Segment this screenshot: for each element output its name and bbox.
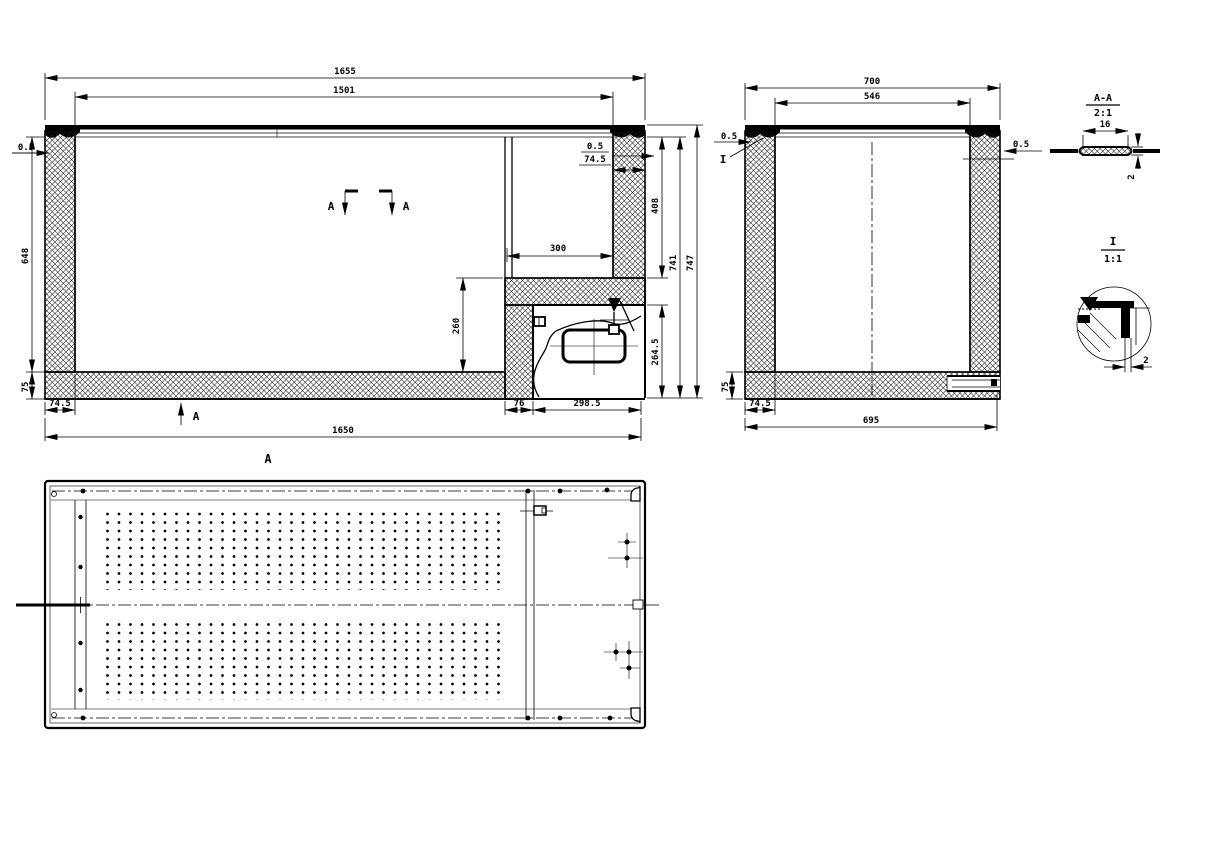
- dim-left-wall: 74.5: [49, 399, 71, 409]
- dim-side-inner-width: 546: [864, 92, 880, 102]
- dim-side-lid-gap-right: 0.5: [1013, 140, 1029, 150]
- cut-label-left: A: [328, 200, 335, 213]
- dim-inner-width: 1501: [333, 86, 355, 96]
- insulation: [45, 131, 645, 399]
- insulation-side: [745, 131, 1000, 399]
- side-section-view: 700 546 0.5 I 0.5 75 74.5 695: [714, 77, 1042, 431]
- drawing-canvas: 1655 1501 0.5 648 75 74.5 A A 0.5: [0, 0, 1205, 863]
- dim-bottom-insulation: 75: [21, 382, 31, 393]
- dim-side-width: 700: [864, 77, 880, 87]
- liner-lines-side: [745, 137, 1000, 399]
- dim-machine-room-width: 298.5: [573, 399, 600, 409]
- dim-step-height: 260: [452, 318, 462, 334]
- dim-lid-gap-right: 0.5: [587, 142, 603, 152]
- dim-recess-depth: 408: [651, 198, 661, 214]
- divider-fitting: [534, 506, 546, 515]
- detail-i-view: I 1:1 2: [1077, 235, 1152, 372]
- detail-aa-thickness: 2: [1127, 174, 1137, 179]
- detail-i-scale: 1:1: [1104, 254, 1122, 265]
- dim-overall-width-top: 1655: [334, 67, 356, 77]
- detail-i-gap: 2: [1143, 356, 1148, 366]
- detail-aa-view: A-A 2:1 16 2: [1050, 93, 1160, 180]
- cut-label-right: A: [403, 200, 410, 213]
- liner-lines: [45, 137, 645, 399]
- dim-machine-wall: 76: [514, 399, 525, 409]
- dim-side-bottom-insulation: 75: [721, 382, 731, 393]
- dim-overall-height: 747: [686, 255, 696, 271]
- detail-aa-scale: 2:1: [1094, 108, 1112, 119]
- dim-overall-width-bottom: 1650: [332, 426, 354, 436]
- plan-view: [16, 481, 660, 728]
- corner-profile: [1078, 297, 1150, 352]
- dim-recess-width: 300: [550, 244, 566, 254]
- dim-side-bottom-width: 695: [863, 416, 879, 426]
- machine-compartment: [534, 298, 641, 397]
- gasket-strip: [1080, 147, 1132, 155]
- detail-aa-title: A-A: [1094, 93, 1112, 104]
- detail-marker-i: I: [720, 153, 727, 166]
- terminal-connector: [534, 317, 545, 326]
- dim-machine-room-height: 264.5: [651, 338, 661, 365]
- dim-liner-height: 741: [669, 255, 679, 271]
- drawing-sheet: 1655 1501 0.5 648 75 74.5 A A 0.5: [0, 0, 1205, 863]
- view-label-a: A: [264, 452, 272, 466]
- dim-side-lid-gap-left: 0.5: [721, 132, 737, 142]
- dim-right-wall: 74.5: [584, 155, 606, 165]
- dim-inner-depth: 648: [21, 248, 31, 264]
- front-section-view: 1655 1501 0.5 648 75 74.5 A A 0.5: [12, 67, 703, 466]
- drain-tube: [947, 375, 1000, 391]
- detail-i-title: I: [1110, 235, 1117, 248]
- lid-side: [745, 125, 1000, 138]
- cut-label-bottom: A: [193, 410, 200, 423]
- edge-notch: [633, 600, 643, 609]
- detail-aa-width: 16: [1100, 120, 1111, 130]
- dim-side-wall: 74.5: [749, 399, 771, 409]
- lid: [45, 125, 645, 138]
- service-valve: [609, 325, 619, 334]
